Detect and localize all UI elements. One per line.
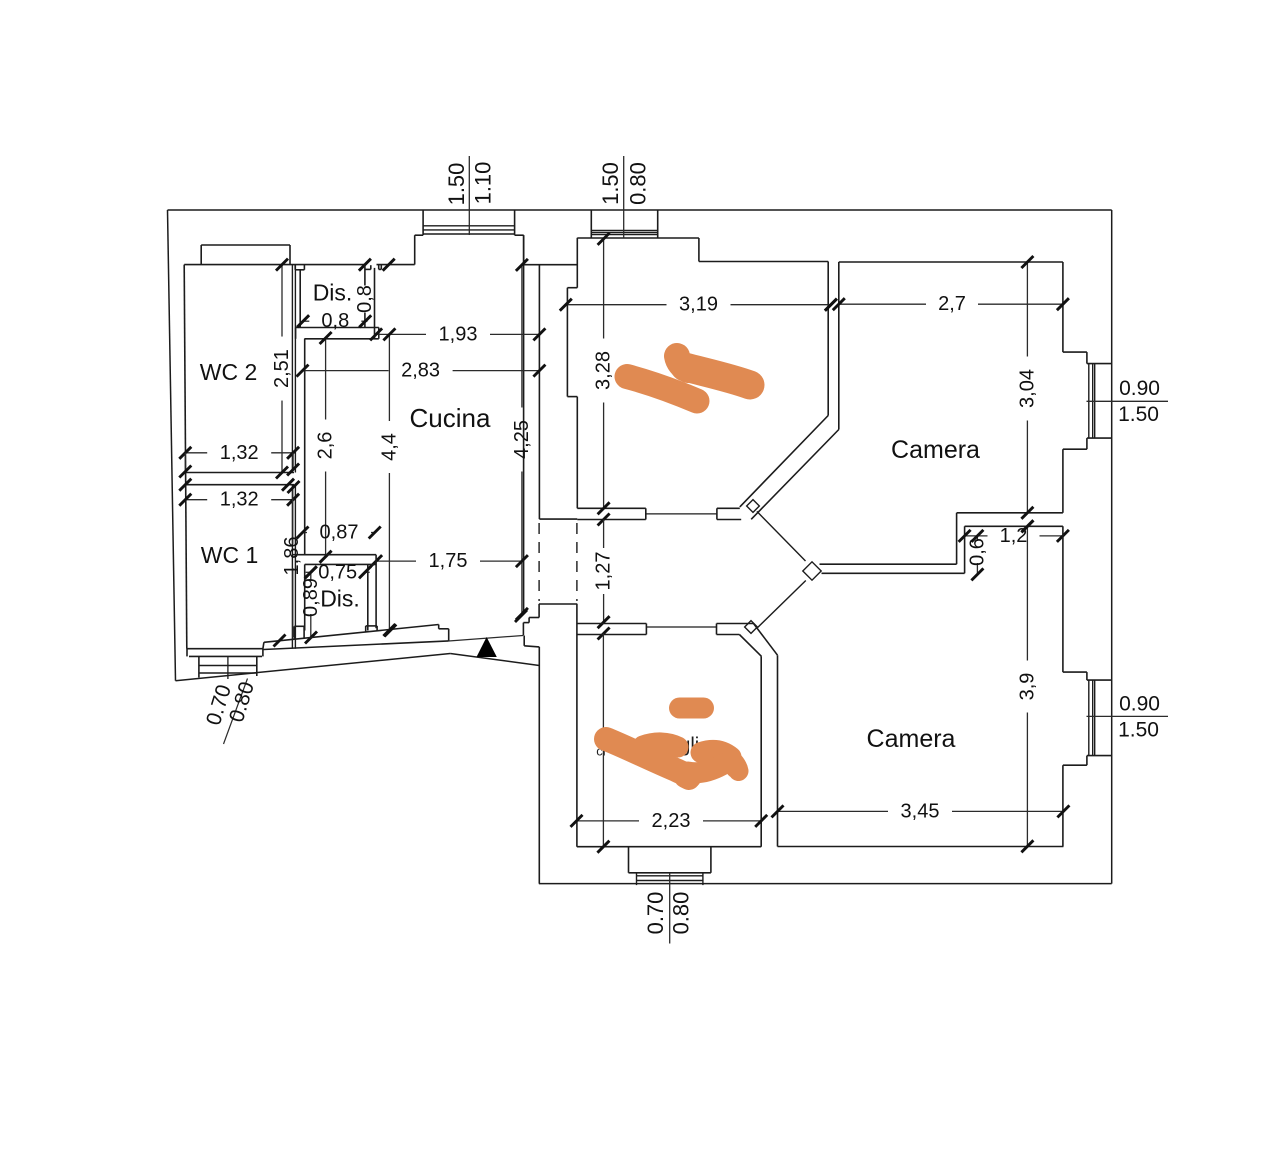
svg-text:Cucina: Cucina	[410, 403, 491, 433]
svg-text:0,8: 0,8	[354, 285, 376, 313]
svg-text:0.80: 0.80	[625, 162, 650, 205]
svg-text:3,04: 3,04	[1016, 369, 1038, 408]
svg-text:1,32: 1,32	[220, 442, 259, 464]
svg-text:2,6: 2,6	[315, 432, 337, 460]
svg-text:1.10: 1.10	[471, 162, 496, 205]
svg-text:3,9: 3,9	[1016, 673, 1038, 701]
svg-text:1,32: 1,32	[220, 489, 259, 511]
svg-text:1.50: 1.50	[598, 162, 623, 205]
svg-text:1,27: 1,27	[593, 552, 615, 591]
svg-text:2,51: 2,51	[271, 349, 293, 388]
svg-text:WC 2: WC 2	[200, 359, 258, 385]
svg-text:2,7: 2,7	[938, 293, 966, 315]
svg-text:1.50: 1.50	[1118, 719, 1159, 742]
svg-text:0,8: 0,8	[321, 310, 349, 332]
svg-text:3,45: 3,45	[901, 800, 940, 822]
svg-text:1.50: 1.50	[1118, 403, 1159, 426]
svg-text:0,89: 0,89	[300, 578, 322, 617]
svg-text:1,86: 1,86	[281, 537, 303, 576]
svg-text:Camera: Camera	[891, 436, 980, 464]
svg-text:4,4: 4,4	[378, 433, 400, 461]
svg-text:1,93: 1,93	[439, 323, 478, 345]
svg-text:2,23: 2,23	[652, 810, 691, 832]
svg-text:1,75: 1,75	[429, 550, 468, 572]
svg-text:1.50: 1.50	[444, 163, 469, 206]
svg-text:0,75: 0,75	[318, 561, 357, 583]
svg-text:0,6: 0,6	[966, 538, 988, 566]
svg-text:Camera: Camera	[867, 725, 956, 753]
svg-text:Dis.: Dis.	[313, 280, 353, 306]
svg-text:3,28: 3,28	[593, 351, 615, 390]
svg-text:1,2: 1,2	[1000, 525, 1028, 547]
svg-text:0,87: 0,87	[320, 522, 359, 544]
svg-text:0.90: 0.90	[1119, 377, 1160, 400]
svg-text:2,83: 2,83	[401, 360, 440, 382]
svg-text:Dis.: Dis.	[320, 586, 360, 612]
svg-text:0.90: 0.90	[1119, 693, 1160, 716]
svg-text:0.70: 0.70	[643, 892, 668, 935]
svg-text:3,19: 3,19	[679, 294, 718, 316]
svg-text:WC 1: WC 1	[201, 542, 259, 568]
svg-text:0.80: 0.80	[668, 892, 693, 935]
svg-text:4,25: 4,25	[511, 420, 533, 459]
